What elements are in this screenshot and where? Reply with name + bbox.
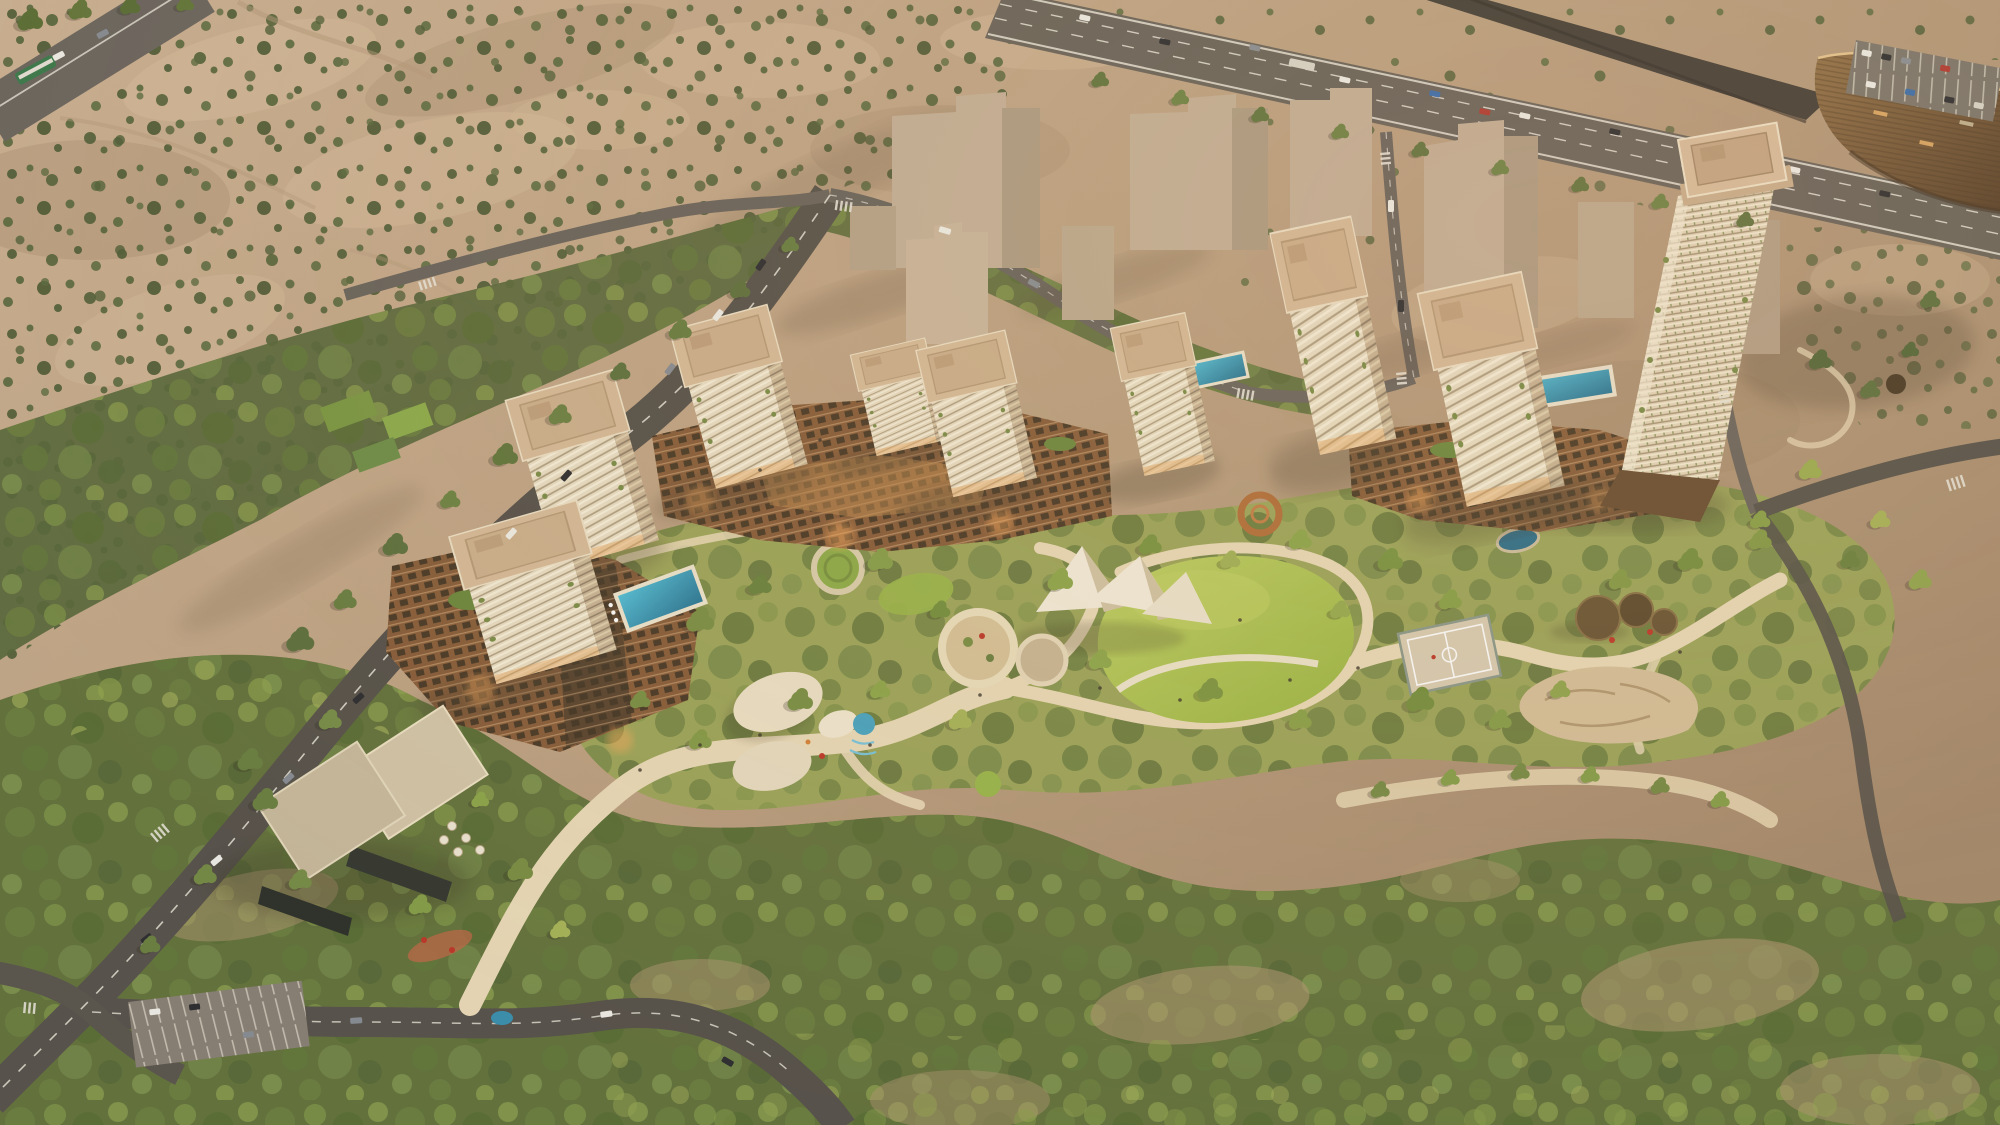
aerial-masterplan-render: [0, 0, 2000, 1125]
corner-shade-overlay: [0, 0, 2000, 1125]
